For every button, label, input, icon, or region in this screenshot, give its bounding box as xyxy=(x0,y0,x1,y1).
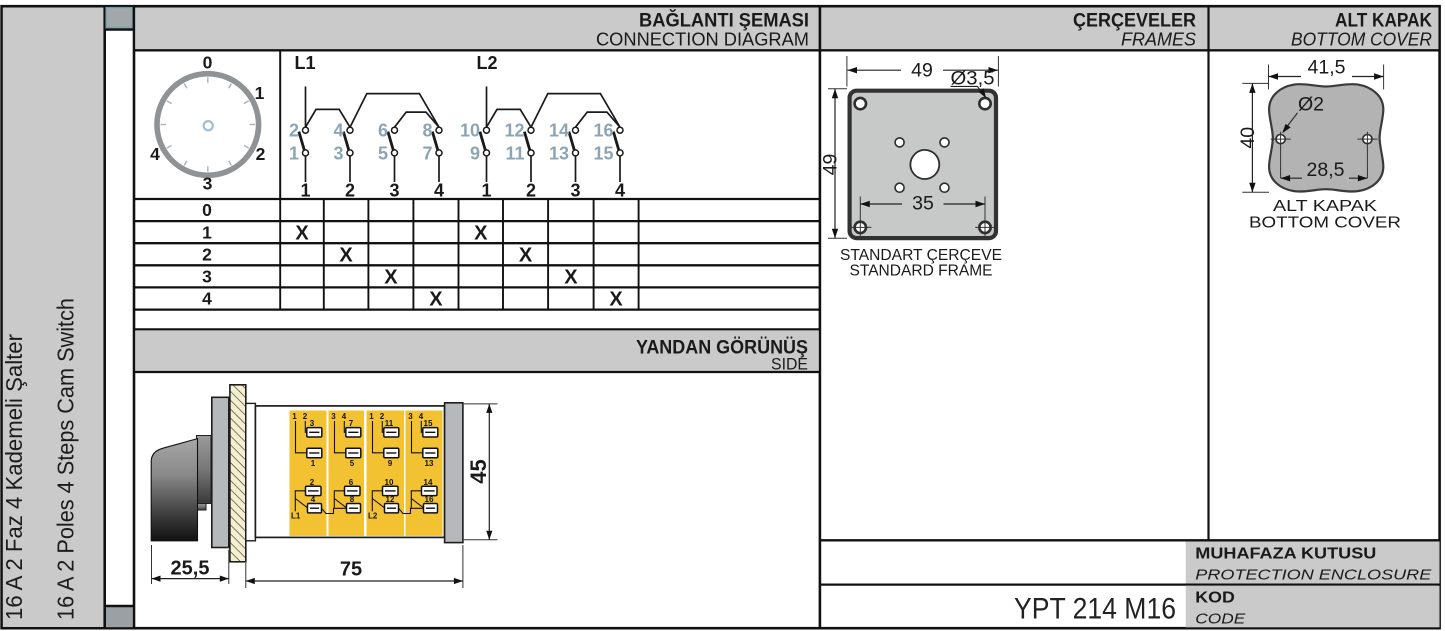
svg-text:40: 40 xyxy=(1237,127,1259,149)
svg-text:0: 0 xyxy=(203,53,213,73)
svg-text:9: 9 xyxy=(388,459,393,468)
svg-text:4: 4 xyxy=(333,121,343,141)
svg-text:1: 1 xyxy=(255,83,265,103)
svg-text:3: 3 xyxy=(408,412,413,421)
svg-text:4: 4 xyxy=(615,181,625,201)
svg-text:1: 1 xyxy=(289,144,299,164)
svg-text:X: X xyxy=(384,267,398,289)
svg-text:X: X xyxy=(564,267,578,289)
svg-text:11: 11 xyxy=(505,144,524,164)
svg-text:16: 16 xyxy=(593,121,613,141)
svg-text:2: 2 xyxy=(256,144,266,164)
svg-text:4: 4 xyxy=(202,289,212,309)
svg-text:11: 11 xyxy=(385,419,394,428)
svg-text:41,5: 41,5 xyxy=(1308,57,1346,79)
svg-text:1: 1 xyxy=(202,222,212,242)
svg-text:14: 14 xyxy=(424,478,433,487)
svg-text:X: X xyxy=(295,222,309,244)
svg-text:15: 15 xyxy=(593,144,613,164)
svg-text:4: 4 xyxy=(150,144,160,164)
svg-text:6: 6 xyxy=(349,478,354,487)
svg-text:10: 10 xyxy=(460,121,480,141)
svg-text:L1: L1 xyxy=(291,512,301,521)
svg-text:12: 12 xyxy=(504,121,524,141)
svg-text:35: 35 xyxy=(912,193,934,215)
svg-text:FRAMES: FRAMES xyxy=(1121,29,1197,50)
svg-text:STANDARD FRAME: STANDARD FRAME xyxy=(850,263,993,280)
svg-text:1: 1 xyxy=(369,412,374,421)
svg-text:28,5: 28,5 xyxy=(1307,159,1345,181)
svg-text:2: 2 xyxy=(202,244,212,264)
svg-text:14: 14 xyxy=(549,121,569,141)
svg-text:2: 2 xyxy=(289,121,299,141)
svg-text:MUHAFAZA KUTUSU: MUHAFAZA KUTUSU xyxy=(1195,546,1376,563)
svg-text:7: 7 xyxy=(349,419,354,428)
svg-text:49: 49 xyxy=(911,59,933,81)
svg-text:PROTECTION ENCLOSURE: PROTECTION ENCLOSURE xyxy=(1195,567,1432,584)
svg-text:3: 3 xyxy=(333,144,343,164)
svg-text:Ø2: Ø2 xyxy=(1298,94,1324,116)
svg-text:L2: L2 xyxy=(368,512,378,521)
svg-text:1: 1 xyxy=(311,459,316,468)
svg-text:16 A 2 Faz 4 Kademeli Şalter: 16 A 2 Faz 4 Kademeli Şalter xyxy=(1,334,27,620)
svg-text:3: 3 xyxy=(202,267,212,287)
svg-text:BOTTOM COVER: BOTTOM COVER xyxy=(1249,215,1401,232)
svg-text:2: 2 xyxy=(310,478,315,487)
svg-text:8: 8 xyxy=(422,121,432,141)
svg-text:1: 1 xyxy=(300,181,310,201)
svg-text:L2: L2 xyxy=(476,53,497,73)
svg-text:15: 15 xyxy=(424,419,433,428)
svg-text:75: 75 xyxy=(340,559,362,581)
svg-text:X: X xyxy=(429,289,443,311)
svg-text:STANDART ÇERÇEVE: STANDART ÇERÇEVE xyxy=(840,247,1002,264)
svg-text:13: 13 xyxy=(425,459,434,468)
svg-text:KOD: KOD xyxy=(1195,590,1235,607)
svg-text:4: 4 xyxy=(434,181,444,201)
svg-text:CONNECTION DIAGRAM: CONNECTION DIAGRAM xyxy=(596,29,809,50)
svg-text:X: X xyxy=(609,289,623,311)
svg-text:BOTTOM COVER: BOTTOM COVER xyxy=(1291,29,1432,50)
svg-text:3: 3 xyxy=(389,181,399,201)
svg-text:25,5: 25,5 xyxy=(171,558,210,580)
svg-text:6: 6 xyxy=(378,121,388,141)
svg-text:3: 3 xyxy=(570,181,580,201)
svg-text:3: 3 xyxy=(310,419,315,428)
svg-text:0: 0 xyxy=(202,200,212,220)
svg-text:X: X xyxy=(339,244,353,266)
svg-text:ALT KAPAK: ALT KAPAK xyxy=(1273,198,1378,215)
svg-text:1: 1 xyxy=(481,181,491,201)
svg-text:49: 49 xyxy=(820,154,842,176)
svg-text:YPT 214 M16: YPT 214 M16 xyxy=(1014,593,1176,626)
svg-text:X: X xyxy=(474,222,488,244)
svg-text:45: 45 xyxy=(466,459,491,483)
svg-text:2: 2 xyxy=(303,412,308,421)
svg-text:9: 9 xyxy=(470,144,480,164)
svg-text:5: 5 xyxy=(378,144,388,164)
svg-text:3: 3 xyxy=(331,412,336,421)
svg-text:10: 10 xyxy=(385,478,394,487)
svg-text:CODE: CODE xyxy=(1195,611,1246,628)
svg-text:2: 2 xyxy=(526,181,536,201)
svg-text:SIDE: SIDE xyxy=(771,356,808,374)
svg-text:4: 4 xyxy=(342,412,347,421)
svg-text:5: 5 xyxy=(350,459,355,468)
svg-text:X: X xyxy=(519,244,533,266)
svg-text:13: 13 xyxy=(549,144,569,164)
svg-text:7: 7 xyxy=(422,144,432,164)
svg-text:2: 2 xyxy=(345,181,355,201)
svg-text:3: 3 xyxy=(203,174,213,194)
svg-text:16 A 2 Poles 4 Steps Cam Switc: 16 A 2 Poles 4 Steps Cam Switch xyxy=(53,298,79,620)
svg-text:L1: L1 xyxy=(294,53,315,73)
svg-text:1: 1 xyxy=(292,412,297,421)
